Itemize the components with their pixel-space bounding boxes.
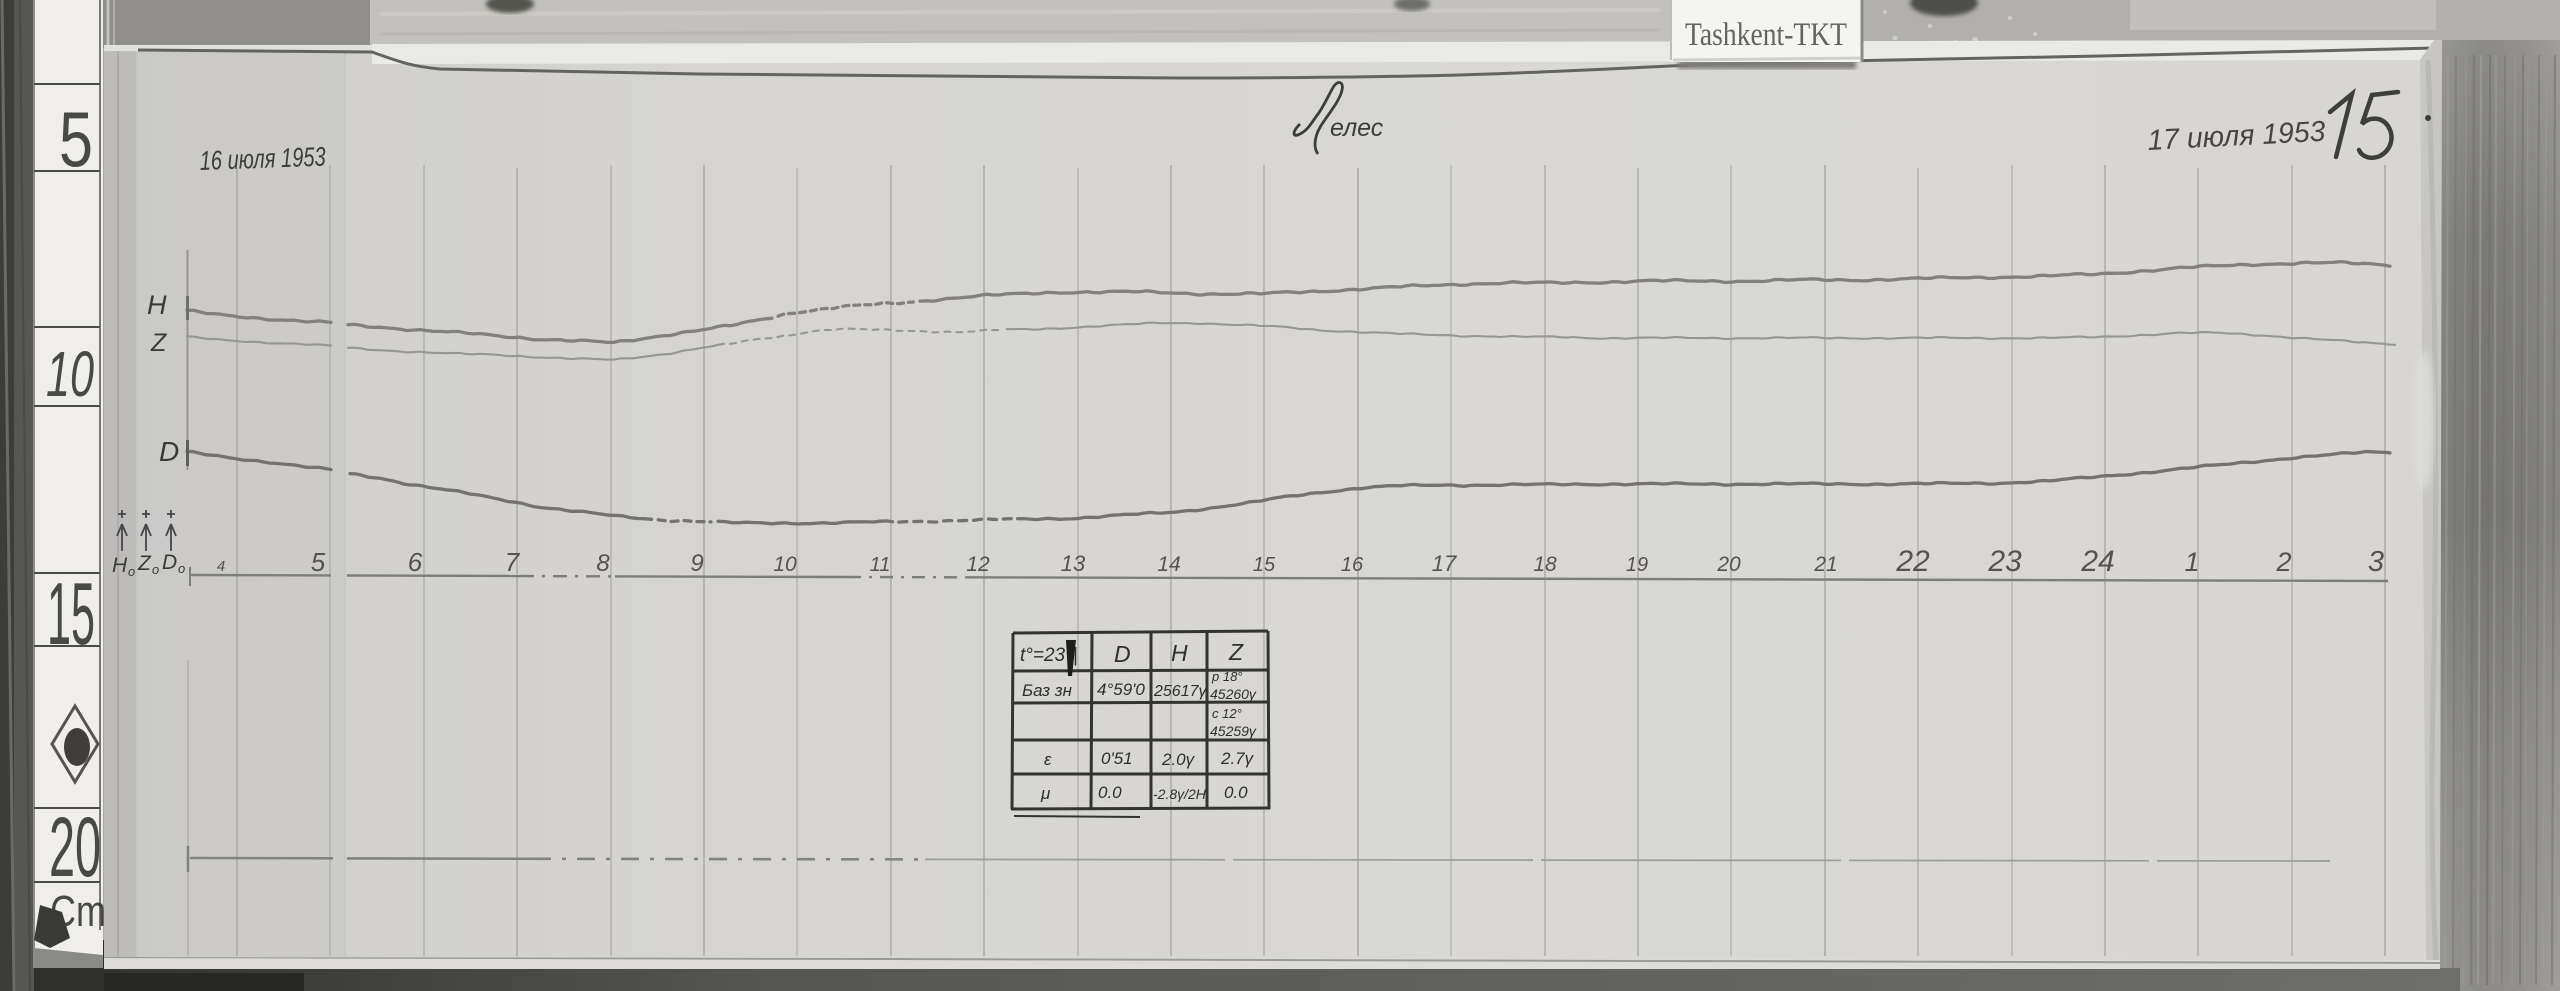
svg-text:5: 5	[311, 547, 326, 577]
svg-text:5: 5	[59, 95, 93, 183]
svg-text:Z: Z	[137, 552, 152, 575]
svg-text:7: 7	[505, 547, 521, 577]
svg-text:c 12°: c 12°	[1212, 706, 1242, 721]
svg-text:μ: μ	[1040, 784, 1051, 803]
svg-text:25617γ: 25617γ	[1153, 683, 1207, 700]
svg-text:2: 2	[2275, 547, 2291, 577]
svg-text:9: 9	[690, 550, 703, 577]
svg-text:17: 17	[1432, 551, 1457, 576]
svg-text:10: 10	[46, 338, 94, 410]
svg-text:45259γ: 45259γ	[1210, 723, 1257, 739]
svg-text:6: 6	[408, 547, 423, 577]
svg-text:D: D	[162, 551, 177, 574]
svg-text:15: 15	[1253, 554, 1276, 576]
svg-text:15: 15	[47, 564, 95, 663]
svg-text:Z: Z	[150, 329, 167, 357]
svg-text:ε: ε	[1044, 750, 1052, 769]
svg-text:D: D	[159, 436, 179, 467]
svg-text:24: 24	[2080, 545, 2114, 578]
svg-text:-2.8γ/2H: -2.8γ/2H	[1153, 786, 1207, 802]
svg-text:2.0γ: 2.0γ	[1161, 750, 1196, 769]
svg-text:Баз зн: Баз зн	[1022, 681, 1073, 700]
svg-text:22: 22	[1895, 545, 1930, 578]
svg-text:H: H	[1171, 640, 1188, 666]
svg-text:12: 12	[966, 553, 990, 576]
svg-text:4: 4	[217, 558, 225, 575]
svg-text:Tashkent-TKT: Tashkent-TKT	[1685, 17, 1847, 53]
svg-text:елес: елес	[1330, 114, 1384, 142]
svg-text:o: o	[178, 561, 185, 576]
svg-text:13: 13	[1061, 551, 1086, 576]
svg-text:o: o	[128, 564, 135, 579]
svg-text:D: D	[1114, 641, 1131, 667]
svg-text:o: o	[152, 562, 159, 577]
svg-text:16: 16	[1341, 554, 1364, 576]
svg-text:p 18°: p 18°	[1211, 669, 1243, 684]
svg-text:10: 10	[773, 553, 797, 576]
svg-text:1: 1	[2184, 547, 2199, 577]
svg-text:0.0: 0.0	[1224, 783, 1248, 802]
svg-text:20: 20	[1716, 553, 1741, 576]
svg-text:18: 18	[1533, 553, 1557, 576]
svg-text:19: 19	[1626, 554, 1648, 576]
svg-text:14: 14	[1157, 553, 1180, 576]
svg-text:3: 3	[2368, 546, 2384, 578]
svg-text:21: 21	[1813, 553, 1837, 576]
svg-text:0'51: 0'51	[1101, 749, 1133, 768]
svg-text:H: H	[112, 554, 128, 577]
svg-text:2.7γ: 2.7γ	[1220, 749, 1255, 768]
svg-text:45260γ: 45260γ	[1210, 686, 1257, 702]
svg-text:23: 23	[1987, 545, 2022, 578]
svg-text:0.0: 0.0	[1098, 783, 1122, 802]
svg-text:11: 11	[870, 554, 891, 576]
svg-text:8: 8	[596, 550, 610, 577]
svg-text:Z: Z	[1228, 639, 1244, 665]
svg-text:16 июля 1953: 16 июля 1953	[199, 142, 326, 176]
svg-text:H: H	[147, 290, 167, 320]
svg-text:20: 20	[49, 800, 101, 894]
svg-text:4°59'0: 4°59'0	[1097, 680, 1145, 699]
